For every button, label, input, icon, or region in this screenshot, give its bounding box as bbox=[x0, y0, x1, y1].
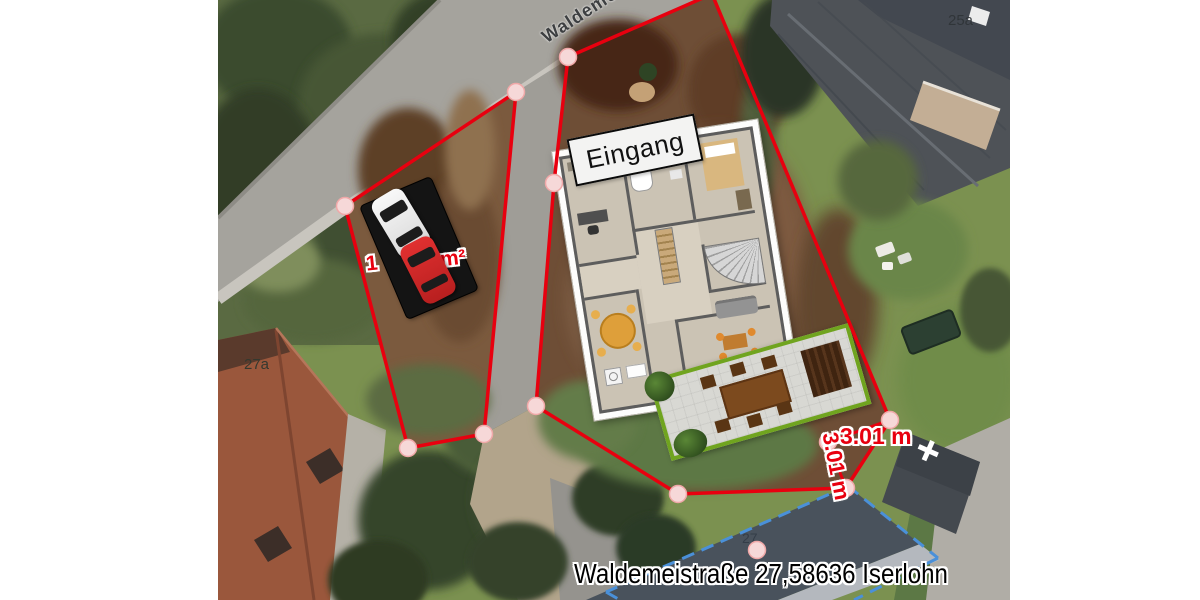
aerial-map[interactable]: Waldemeist 25a 27a 27 1 m² bbox=[218, 0, 1010, 600]
boundary-vertex[interactable] bbox=[337, 198, 354, 215]
boundary-vertex[interactable] bbox=[476, 426, 493, 443]
address-label: Waldemeistraße 27,58636 Iserlohn bbox=[574, 558, 948, 590]
boundary-vertex[interactable] bbox=[528, 398, 545, 415]
boundary-vertex[interactable] bbox=[400, 440, 417, 457]
boundary-polygon-left[interactable] bbox=[345, 92, 516, 448]
measurement-vertex[interactable] bbox=[749, 542, 766, 559]
boundary-vertex[interactable] bbox=[508, 84, 525, 101]
annotation-overlay bbox=[218, 0, 1010, 600]
screenshot: Waldemeist 25a 27a 27 1 m² bbox=[0, 0, 1200, 600]
boundary-vertex[interactable] bbox=[670, 486, 687, 503]
right-margin bbox=[1010, 0, 1200, 600]
boundary-vertex[interactable] bbox=[560, 49, 577, 66]
measurement-label-horizontal: 3.01 m bbox=[840, 423, 912, 450]
boundary-vertex[interactable] bbox=[546, 175, 563, 192]
left-margin bbox=[0, 0, 218, 600]
boundary-polygon-main[interactable] bbox=[536, 0, 890, 494]
